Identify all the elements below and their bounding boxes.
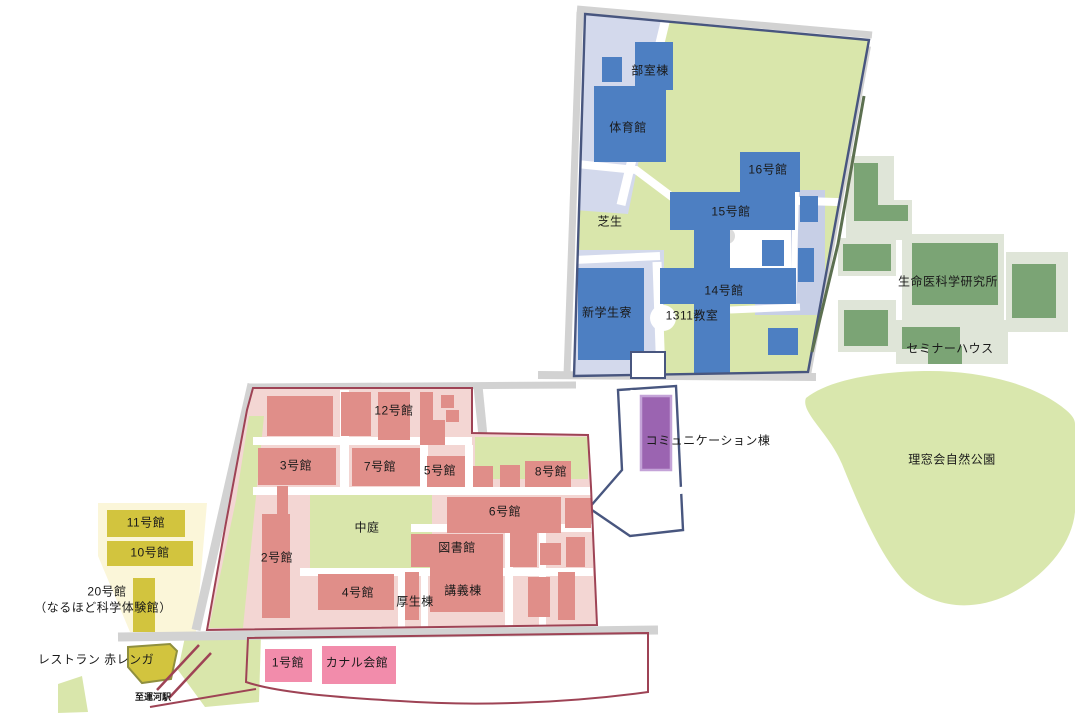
label-welfare-bldg: 厚生棟 [396, 595, 434, 608]
label-bldg20-sub: （なるほど科学体験館） [34, 601, 172, 614]
label-bldg16: 16号館 [748, 163, 787, 176]
campus-road [730, 307, 800, 310]
label-bldg7: 7号館 [364, 460, 396, 473]
building-small-e [762, 240, 784, 266]
campus-gate-notch [631, 352, 665, 378]
building-unnamed [500, 465, 520, 487]
building-unnamed [528, 577, 550, 617]
label-bldg11: 11号館 [127, 516, 165, 529]
label-club-building: 部室棟 [631, 64, 669, 77]
label-library: 図書館 [438, 541, 476, 554]
road-mid-horizontal [248, 385, 576, 387]
label-bldg6: 6号館 [489, 505, 521, 518]
path-strip-1 [631, 390, 634, 472]
building-2-link [277, 486, 288, 516]
label-bldg8: 8号館 [535, 465, 567, 478]
label-nature-park: 理窓会自然公園 [908, 453, 996, 466]
building-unnamed [558, 572, 575, 620]
building-unnamed [540, 543, 561, 565]
building-small-e2 [798, 248, 814, 282]
building-unnamed [341, 392, 371, 436]
label-bldg15: 15号館 [711, 205, 750, 218]
building-2 [262, 514, 290, 618]
label-bldg4: 4号館 [342, 586, 374, 599]
campus-road [574, 256, 660, 260]
research-building-2 [843, 244, 891, 271]
building-small-s [768, 328, 798, 355]
building-unnamed [446, 410, 459, 422]
label-bldg20: 20号館 [87, 585, 126, 598]
label-bldg2: 2号館 [261, 551, 293, 564]
region-green-corner [58, 676, 88, 713]
building-6-east [565, 498, 591, 528]
label-lawn: 芝生 [597, 215, 622, 228]
label-room1311: 1311教室 [666, 309, 719, 322]
label-bldg5: 5号館 [424, 464, 456, 477]
building-unnamed [267, 396, 333, 436]
label-restaurant: レストラン 赤レンガ [38, 653, 154, 666]
path-strip-2 [617, 490, 684, 499]
region-nature-park [805, 371, 1075, 605]
label-courtyard: 中庭 [354, 521, 379, 534]
club-annex-building [602, 57, 622, 82]
label-bldg3: 3号館 [280, 459, 312, 472]
building-unnamed [426, 420, 445, 445]
campus-map: 部室棟 体育館 16号館 15号館 芝生 14号館 新学生寮 1311教室 生命… [0, 0, 1075, 713]
label-bldg12: 12号館 [374, 404, 413, 417]
label-gymnasium: 体育館 [609, 121, 647, 134]
label-bldg14: 14号館 [704, 284, 743, 297]
research-building-4 [844, 310, 888, 346]
campus-road [465, 445, 473, 495]
building-unnamed [473, 466, 493, 487]
research-building-3 [1012, 264, 1056, 318]
building-unnamed [510, 532, 537, 567]
label-to-station: 至運河駅 [135, 693, 171, 703]
label-lecture-bldg: 講義棟 [444, 584, 482, 597]
label-canal-hall: カナル会館 [326, 656, 389, 669]
label-new-dorm: 新学生寮 [582, 306, 632, 319]
building-unnamed [441, 395, 454, 408]
label-biomedical-institute: 生命医科学研究所 [898, 275, 998, 288]
building-15-east [800, 196, 818, 222]
label-seminar-house: セミナーハウス [906, 342, 993, 355]
label-communication-bldg: コミュニケーション棟 [646, 434, 771, 447]
label-bldg10: 10号館 [130, 546, 169, 559]
north-campus [574, 14, 869, 377]
label-bldg1: 1号館 [272, 656, 304, 669]
building-unnamed [566, 537, 585, 567]
